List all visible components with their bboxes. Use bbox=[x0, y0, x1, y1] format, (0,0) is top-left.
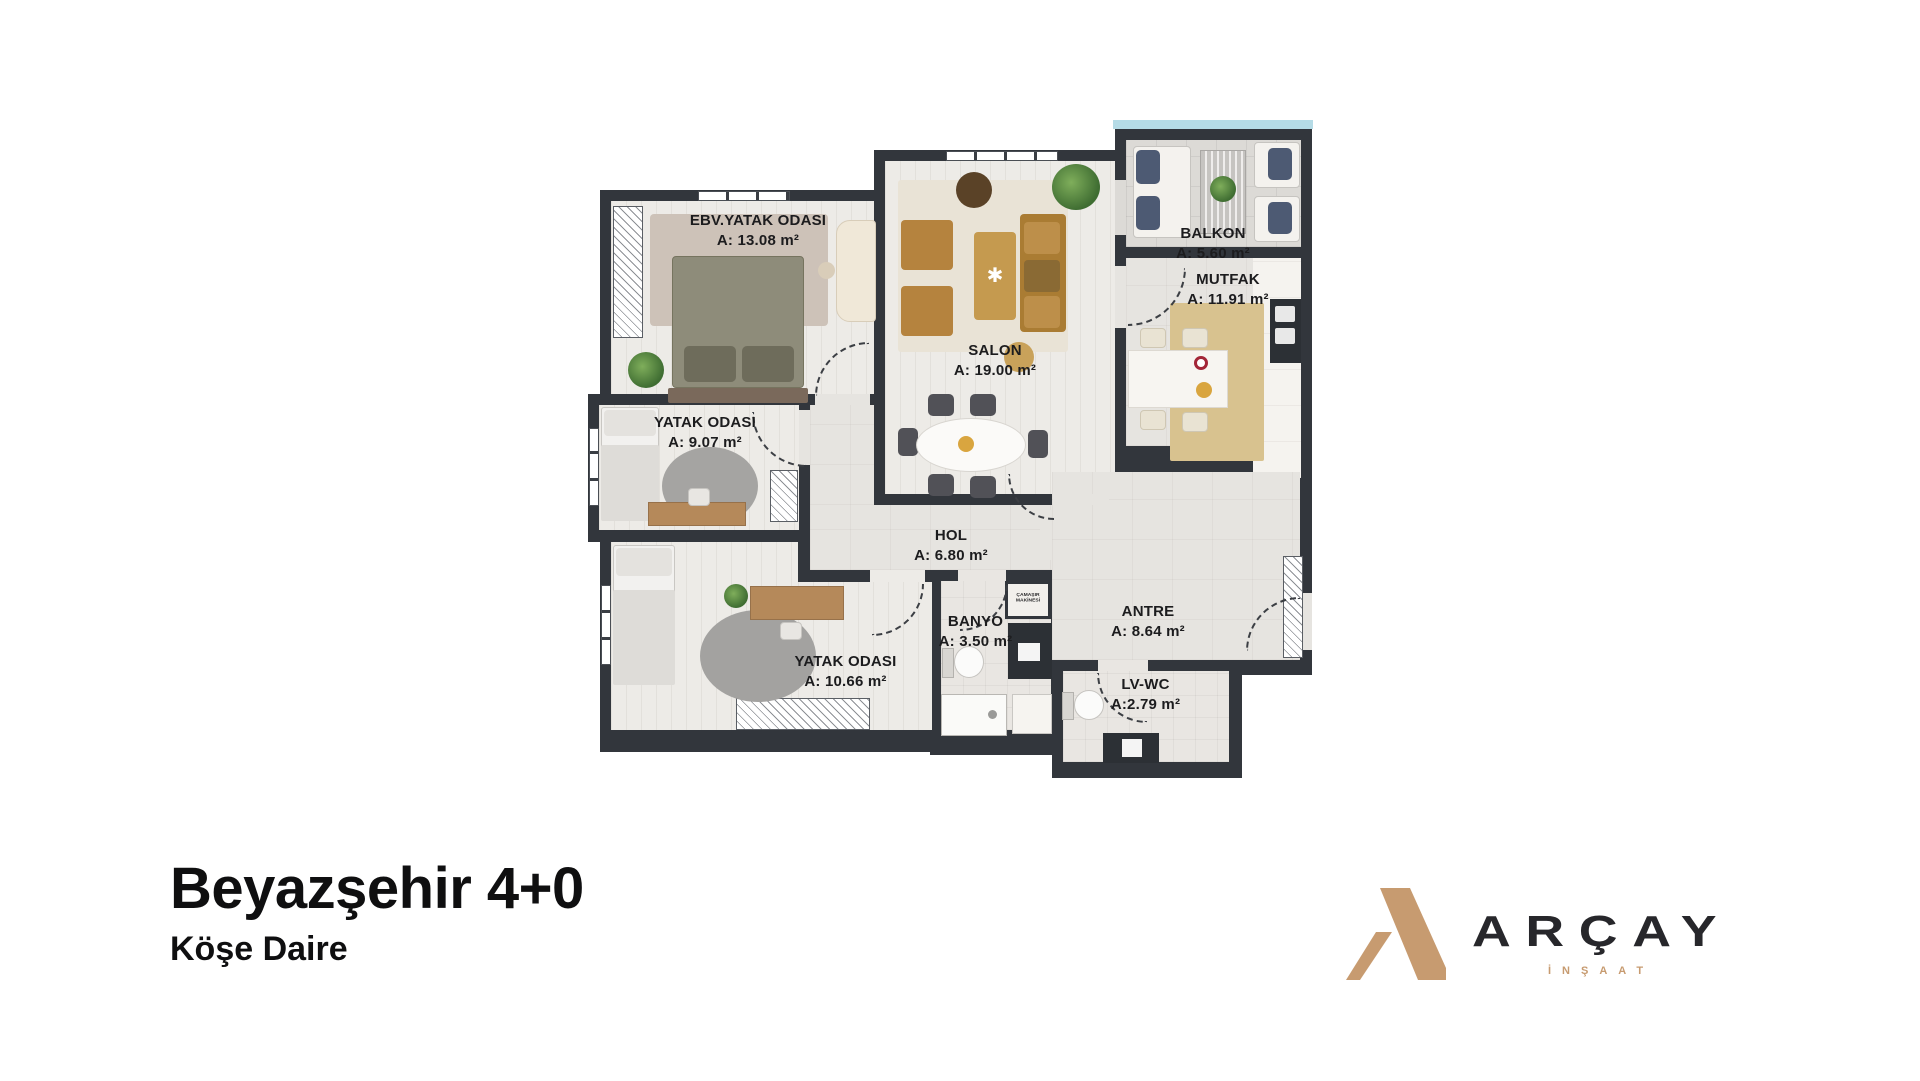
kitchen-table bbox=[1128, 350, 1228, 408]
bed-blanket bbox=[613, 590, 675, 685]
toilet-bowl bbox=[954, 646, 984, 678]
toilet-tank bbox=[1062, 692, 1074, 720]
desk bbox=[750, 586, 844, 620]
brand-wordmark: ARÇAY bbox=[1472, 910, 1731, 954]
plant bbox=[628, 352, 664, 388]
laundry-line2: MAKİNESİ bbox=[1016, 597, 1040, 603]
brand-tagline: İNŞAAT bbox=[1548, 966, 1654, 977]
room-area: A: 3.50 m² bbox=[908, 633, 1043, 650]
door-opening bbox=[958, 570, 1006, 581]
kitchen-chair bbox=[1140, 410, 1166, 430]
kitchen-chair bbox=[1182, 412, 1208, 432]
dining-chair bbox=[970, 476, 996, 498]
bath-cabinet bbox=[1012, 694, 1052, 734]
room-label-hol: HOL A: 6.80 m² bbox=[886, 527, 1016, 565]
room-area: A: 8.64 m² bbox=[1078, 623, 1218, 640]
kitchen-plate bbox=[1196, 382, 1212, 398]
desk-chair bbox=[780, 622, 802, 640]
room-name: SALON bbox=[968, 342, 1022, 359]
balcony-sky-strip bbox=[1113, 120, 1313, 129]
ebv-headboard bbox=[668, 388, 808, 403]
brand-mark-icon bbox=[1346, 888, 1446, 980]
room-label-mutfak: MUTFAK A: 11.91 m² bbox=[1158, 271, 1298, 309]
kitchen-sink bbox=[1275, 328, 1295, 344]
kitchen-chair bbox=[1182, 328, 1208, 348]
salon-armchair bbox=[901, 286, 953, 336]
dining-chair bbox=[928, 474, 954, 496]
wardrobe-hatch bbox=[613, 206, 643, 338]
window bbox=[601, 585, 611, 665]
room-name: BANYO bbox=[948, 613, 1003, 630]
wc-basin bbox=[1122, 739, 1142, 757]
room-area: A: 11.91 m² bbox=[1158, 291, 1298, 308]
toilet-tank bbox=[942, 648, 954, 678]
laundry-label: ÇAMAŞIR MAKİNESİ bbox=[1013, 592, 1044, 603]
dining-chair bbox=[1028, 430, 1048, 458]
ebv-pillow bbox=[742, 346, 794, 382]
shower-tray bbox=[941, 694, 1007, 736]
salon-sofa-cushion bbox=[1024, 260, 1060, 292]
room-label-yatak3: YATAK ODASI A: 10.66 m² bbox=[763, 653, 928, 691]
dining-chair bbox=[898, 428, 918, 456]
ebv-pillow bbox=[684, 346, 736, 382]
floor-hall-vertical bbox=[810, 405, 874, 505]
door-opening bbox=[1098, 660, 1148, 671]
door-opening bbox=[1115, 266, 1126, 328]
salon-armchair bbox=[901, 220, 953, 270]
room-label-lvwc: LV-WC A:2.79 m² bbox=[1078, 676, 1213, 714]
salon-sofa-cushion bbox=[1024, 222, 1060, 254]
room-area: A: 19.00 m² bbox=[930, 362, 1060, 379]
desk-chair bbox=[688, 488, 710, 506]
bed-pillow bbox=[616, 548, 672, 576]
room-name: YATAK ODASI bbox=[654, 414, 756, 431]
room-label-antre: ANTRE A: 8.64 m² bbox=[1078, 603, 1218, 641]
page: { "floor_plan": { "rooms": [ {"name": "E… bbox=[0, 0, 1920, 1081]
room-area: A: 9.07 m² bbox=[625, 434, 785, 451]
room-name: EBV.YATAK ODASI bbox=[690, 212, 826, 229]
room-label-balkon: BALKON A: 5.60 m² bbox=[1148, 225, 1278, 263]
kitchen-plate bbox=[1194, 356, 1208, 370]
room-name: YATAK ODASI bbox=[795, 653, 897, 670]
room-area: A: 5.60 m² bbox=[1148, 245, 1278, 262]
room-name: MUTFAK bbox=[1196, 271, 1260, 288]
room-area: A: 10.66 m² bbox=[763, 673, 928, 690]
kitchen-chair bbox=[1140, 328, 1166, 348]
plant bbox=[724, 584, 748, 608]
window bbox=[946, 151, 1058, 161]
door-opening bbox=[1115, 180, 1126, 235]
page-title: Beyazşehir 4+0 bbox=[170, 860, 584, 918]
ebv-dresser bbox=[836, 220, 876, 322]
room-name: BALKON bbox=[1180, 225, 1245, 242]
page-subtitle: Köşe Daire bbox=[170, 932, 348, 966]
ebv-stool bbox=[818, 262, 835, 279]
wardrobe-hatch bbox=[736, 698, 870, 730]
door-opening bbox=[1053, 494, 1109, 505]
room-label-yatak2: YATAK ODASI A: 9.07 m² bbox=[625, 414, 785, 452]
closet-hatch bbox=[770, 470, 798, 522]
salon-coffee-table: ✱ bbox=[974, 232, 1016, 320]
shower-drain bbox=[988, 710, 997, 719]
window bbox=[698, 191, 790, 201]
room-area: A: 13.08 m² bbox=[678, 232, 838, 249]
room-name: LV-WC bbox=[1121, 676, 1169, 693]
window bbox=[589, 428, 599, 506]
salon-side-table bbox=[956, 172, 992, 208]
room-name: ANTRE bbox=[1122, 603, 1175, 620]
dining-plate bbox=[958, 436, 974, 452]
room-label-salon: SALON A: 19.00 m² bbox=[930, 342, 1060, 380]
dining-chair bbox=[928, 394, 954, 416]
room-name: HOL bbox=[935, 527, 967, 544]
room-label-ebv: EBV.YATAK ODASI A: 13.08 m² bbox=[678, 212, 838, 250]
plant bbox=[1052, 164, 1100, 210]
plant bbox=[1210, 176, 1236, 202]
salon-sofa-cushion bbox=[1024, 296, 1060, 328]
room-label-banyo: BANYO A: 3.50 m² bbox=[908, 613, 1043, 651]
dining-chair bbox=[970, 394, 996, 416]
room-area: A:2.79 m² bbox=[1078, 696, 1213, 713]
door-opening bbox=[870, 570, 925, 582]
balcony-pillow bbox=[1136, 150, 1160, 184]
room-area: A: 6.80 m² bbox=[886, 547, 1016, 564]
balcony-pillow bbox=[1268, 148, 1292, 180]
